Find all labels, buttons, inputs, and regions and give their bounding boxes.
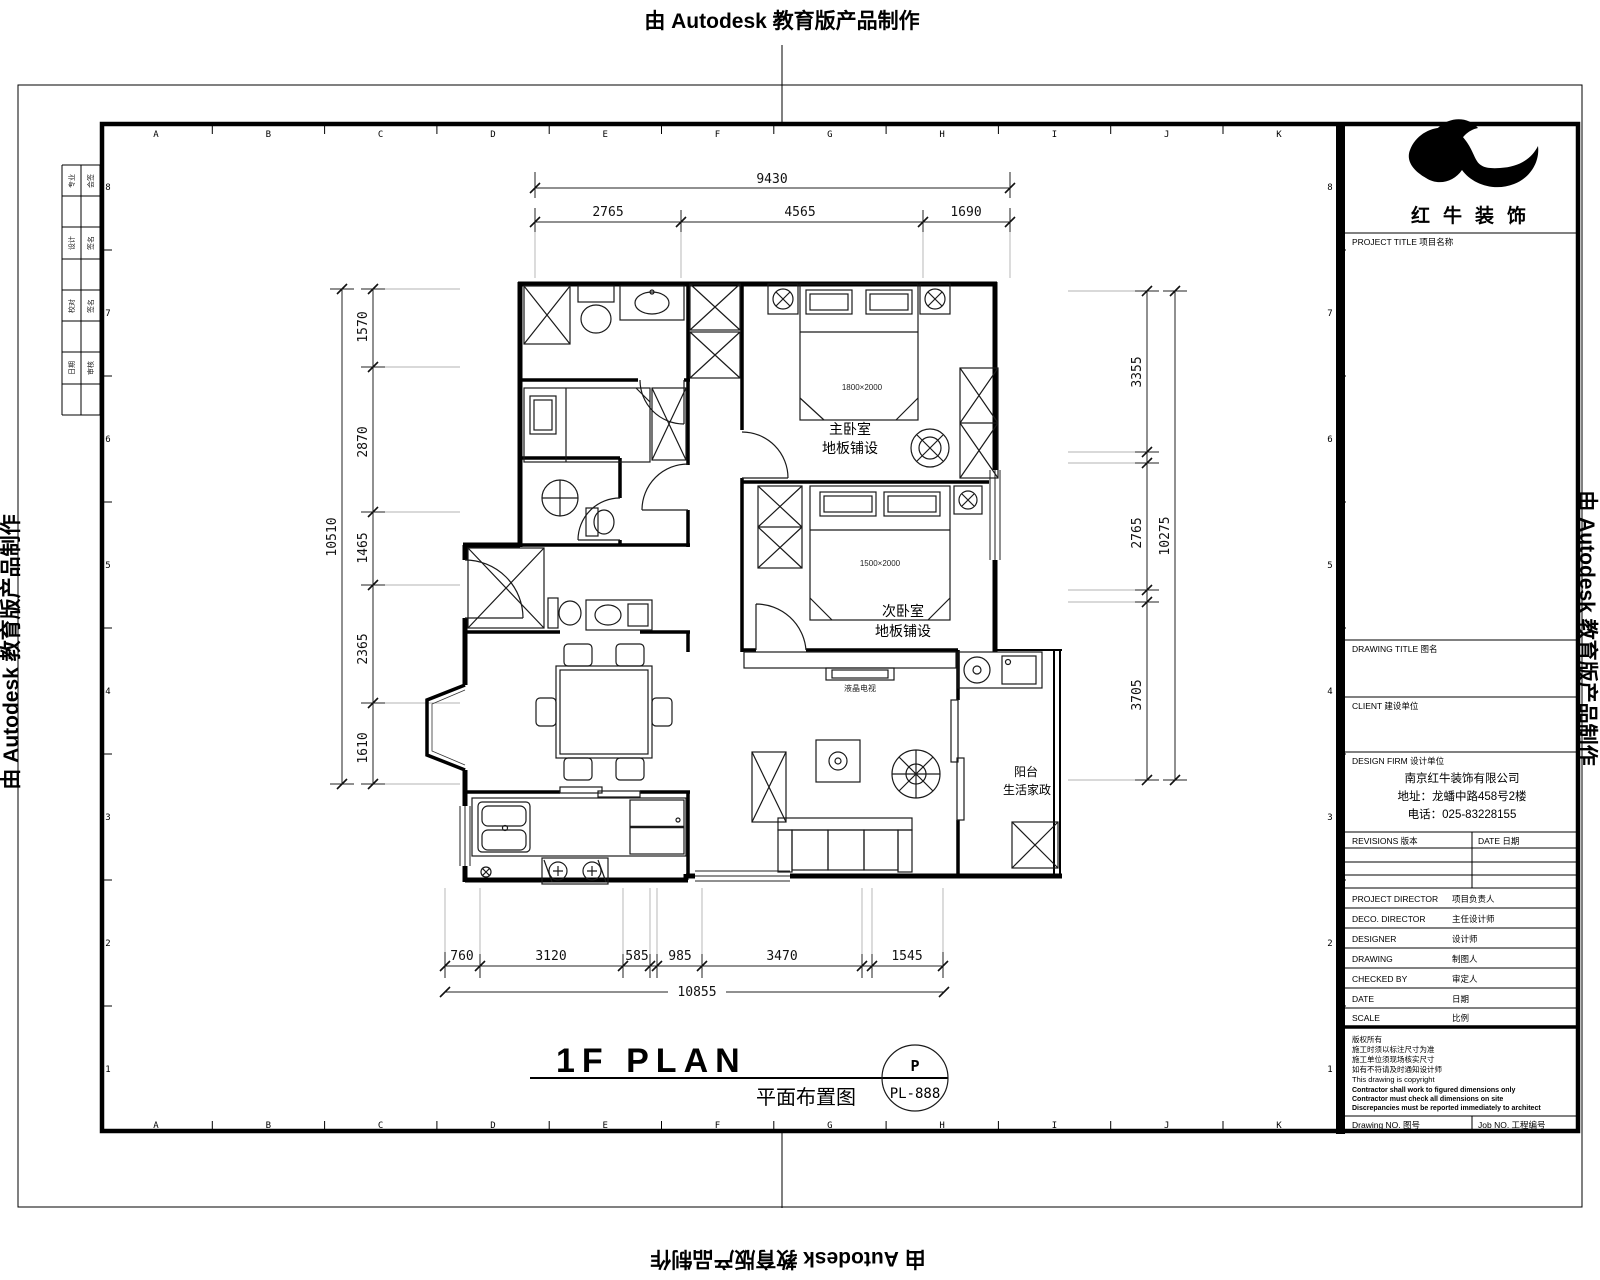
note-line: 施工时须以标注尺寸为准 [1352,1044,1435,1054]
master-bedroom-finish: 地板铺设 [822,440,878,456]
dining-table-icon [556,666,652,758]
sofa-icon [778,818,912,872]
furniture [468,284,1058,884]
dim-value: 985 [668,949,691,964]
hall-toilet-icon [548,598,581,628]
grid-ref-label: 3 [105,813,110,823]
grid-ref-label: 7 [1327,309,1332,319]
grid-ref-label: K [1276,1121,1282,1131]
signature-cell: 日期 [68,361,76,375]
staff-label: DRAWING [1352,954,1393,964]
second-bedroom-finish: 地板铺设 [875,623,931,639]
dim-value: 10510 [325,517,340,556]
plant-icon [892,750,940,798]
signature-cell: 签名 [86,299,95,313]
dim-value: 9430 [756,172,787,187]
badge-letter: P [910,1057,919,1075]
master-bedroom-label: 主卧室 [829,421,871,437]
drawing-no-label: Drawing NO. 图号 [1352,1120,1420,1130]
floor-drain-icon [481,867,491,877]
second-bedroom-label: 次卧室 [882,603,924,619]
armchair-icon [911,429,949,467]
dim-value: 3705 [1130,679,1145,710]
hall-vanity-icon [586,600,652,630]
grid-ref-label: A [153,1121,159,1131]
client-label: CLIENT 建设单位 [1352,701,1419,711]
grid-ref-label: E [602,130,607,140]
grid-ref-label: 8 [1327,183,1332,193]
nightstand-icon [954,486,982,514]
dim-value: 4565 [784,205,815,220]
dim-value: 585 [625,949,648,964]
washer-icon [524,286,570,344]
grid-ref-label: 5 [105,561,110,571]
grid-ref-label: B [266,1121,271,1131]
tall-cabinet-icon [752,752,786,822]
grid-ref-label: K [1276,130,1282,140]
dim-value: 1545 [891,949,922,964]
dim-value: 10855 [677,985,716,1000]
grid-ref-label: B [266,130,271,140]
room-labels: 主卧室 地板铺设 1800×2000 次卧室 地板铺设 1500×2000 阳台… [822,383,1051,797]
bath1-door [640,380,684,424]
nightstand-icon [920,284,950,314]
staff-label: CHECKED BY [1352,974,1408,984]
signature-cell: 签名 [86,236,95,250]
dim-value: 760 [450,949,473,964]
grid-ref-label: 2 [105,939,110,949]
doors [465,380,964,820]
second-bed-icon [810,486,950,620]
grid-ref-label: A [153,130,159,140]
titleblock-notes: 版权所有 施工时须以标注尺寸为准 施工单位须现场核实尺寸 如有不符请及时通知设计… [1352,1034,1541,1112]
grid-ref-label: J [1164,130,1169,140]
brand-logo [1409,119,1538,187]
staff-cn: 项目负责人 [1452,894,1495,904]
staff-label: SCALE [1352,1013,1380,1023]
grid-ref-label: 3 [1327,813,1332,823]
cad-sheet: 专业 会签 设计 签名 校对 签名 日期 审核 [0,0,1600,1280]
drawing-title-label: DRAWING TITLE 图名 [1352,644,1437,654]
signature-cell: 设计 [67,236,76,250]
coffee-table-icon [816,740,860,782]
grid-ref-label: F [715,130,720,140]
dim-value: 1465 [356,532,371,563]
firm-phone: 电话：025-83228155 [1408,808,1517,821]
grid-ref-label: E [602,1121,607,1131]
grid-ref-label: 4 [105,687,110,697]
dim-value: 10275 [1158,516,1173,555]
dim-value: 1610 [356,732,371,763]
watermark-right: 由 Autodesk 教育版产品制作 [1575,490,1599,765]
master-wardrobe-icon [960,368,998,478]
dim-value: 1570 [356,311,371,342]
wardrobe2-icon [758,486,802,568]
brand-name: 红牛装饰 [1411,204,1539,227]
date-col-label: DATE 日期 [1478,836,1519,846]
fridge-icon [630,800,684,854]
dim-value: 3120 [535,949,566,964]
dining-chair-icon [536,644,672,780]
grid-ref-label: 6 [1327,435,1332,445]
note-line: This drawing is copyright [1352,1075,1435,1084]
laundry-counter-icon [958,652,1042,688]
dim-value: 2765 [592,205,623,220]
grid-ref-label: J [1164,1121,1169,1131]
dim-value: 3470 [766,949,797,964]
master-bed-size: 1800×2000 [842,383,883,392]
dim-right: 3355 2765 3705 10275 [1130,286,1187,785]
grid-ref-label: I [1052,130,1057,140]
grid-ref-label: D [490,1121,495,1131]
dim-value: 1690 [950,205,981,220]
note-line: 施工单位须现场核实尺寸 [1352,1054,1435,1064]
kitchen-sink-icon [478,802,530,852]
second-bed-size: 1500×2000 [860,559,901,568]
grid-ref-label: 8 [105,183,110,193]
dim-value: 3355 [1130,356,1145,387]
entry-door [465,560,523,618]
signature-cell: 会签 [86,174,95,188]
nightstand-icon [768,284,798,314]
staff-cn: 制图人 [1452,954,1478,964]
master-bed-icon [800,284,918,420]
staff-label: PROJECT DIRECTOR [1352,894,1438,904]
kitchen-slider [560,787,602,793]
grid-ref-label: 6 [105,435,110,445]
staff-cn: 比例 [1452,1013,1469,1023]
grid-ref-label: 1 [1327,1065,1332,1075]
dim-value: 2365 [356,633,371,664]
job-no-label: Job NO. 工程编号 [1478,1120,1546,1130]
dim-value: 2765 [1130,517,1145,548]
toilet-icon [578,286,614,333]
grid-ref-label: 4 [1327,687,1332,697]
watermark-bottom: 由 Autodesk 教育版产品制作 [650,1247,925,1271]
balcony-slider [957,758,964,820]
staff-label: DESIGNER [1352,934,1396,944]
shaft-cabinet-icon [690,284,740,378]
master-bedroom-door [742,432,788,478]
plan-title: 1F PLAN [556,1042,747,1080]
grid-ref-label: C [378,130,383,140]
single-bed-icon [524,388,650,462]
grid-ref-label: 2 [1327,939,1332,949]
project-title-label: PROJECT TITLE 项目名称 [1352,237,1454,247]
badge-code: PL-888 [890,1086,941,1102]
toilet2-icon [586,508,614,536]
note-line: Contractor must check all dimensions on … [1352,1096,1503,1103]
shower-icon [542,480,578,516]
tv-cabinet-icon [744,652,956,668]
watermark-left: 由 Autodesk 教育版产品制作 [0,514,23,789]
dim-value: 2870 [356,426,371,457]
grid-ref-label: H [939,1121,944,1131]
note-line: 版权所有 [1352,1034,1382,1044]
hall-closet-icon [468,548,544,628]
grid-refs: AABBCCDDEEFFGGHHIIJJKK8877665544332211 [102,124,1346,1131]
watermark-top: 由 Autodesk 教育版产品制作 [644,9,919,33]
firm-address: 地址：龙蟠中路458号2楼 [1397,789,1527,803]
note-line: 如有不符请及时通知设计师 [1352,1064,1442,1074]
staff-rows: PROJECT DIRECTOR 项目负责人 DECO. DIRECTOR 主任… [1352,894,1495,1023]
vanity-sink-icon [620,286,684,320]
walls [427,282,1062,882]
drawing-title: 1F PLAN 平面布置图 P PL-888 [530,1042,948,1111]
signature-cell: 审核 [86,361,95,375]
grid-ref-label: H [939,130,944,140]
signature-table: 专业 会签 设计 签名 校对 签名 日期 审核 [62,165,100,415]
balcony-slider [951,700,958,762]
grid-ref-label: D [490,130,495,140]
tv-icon [826,668,894,680]
revisions-label: REVISIONS 版本 [1352,836,1418,846]
title-block: 红牛装饰 PROJECT TITLE 项目名称 DRAWING TITLE 图名… [1345,119,1578,1131]
staff-label: DECO. DIRECTOR [1352,914,1426,924]
firm-name: 南京红牛装饰有限公司 [1405,771,1520,785]
third-bedroom-door [642,464,688,510]
second-bedroom-door [756,604,806,650]
staff-cn: 主任设计师 [1452,914,1495,924]
tv-label: 液晶电视 [844,683,876,693]
note-line: Discrepancies must be reported immediate… [1352,1105,1541,1112]
grid-ref-label: 5 [1327,561,1332,571]
grid-ref-label: G [827,1121,832,1131]
staff-cn: 设计师 [1452,934,1478,944]
grid-ref-label: 7 [105,309,110,319]
plan-subtitle: 平面布置图 [756,1086,856,1109]
floor-plan: 主卧室 地板铺设 1800×2000 次卧室 地板铺设 1500×2000 阳台… [427,282,1062,884]
dim-top: 9430 2765 4565 1690 [530,172,1015,232]
grid-ref-label: I [1052,1121,1057,1131]
grid-ref-label: G [827,130,832,140]
balcony-washer-icon [1012,822,1058,868]
grid-ref-label: 1 [105,1065,110,1075]
staff-cn: 日期 [1452,994,1469,1004]
grid-ref-label: C [378,1121,383,1131]
design-firm-label: DESIGN FIRM 设计单位 [1352,756,1445,766]
grid-ref-label: F [715,1121,720,1131]
windows [459,470,1001,882]
signature-cell: 专业 [67,174,76,188]
staff-cn: 审定人 [1452,974,1478,984]
staff-label: DATE [1352,994,1374,1004]
balcony-label: 阳台 [1014,764,1038,779]
kitchen-slider [598,791,640,797]
balcony-finish: 生活家政 [1003,782,1051,797]
note-line: Contractor shall work to figured dimensi… [1352,1087,1515,1094]
dim-left: 10510 1570 2870 1465 2365 1610 [325,284,385,789]
signature-cell: 校对 [67,299,76,313]
dim-bottom: 760 3120 585 985 3470 1545 10855 [440,949,949,1000]
